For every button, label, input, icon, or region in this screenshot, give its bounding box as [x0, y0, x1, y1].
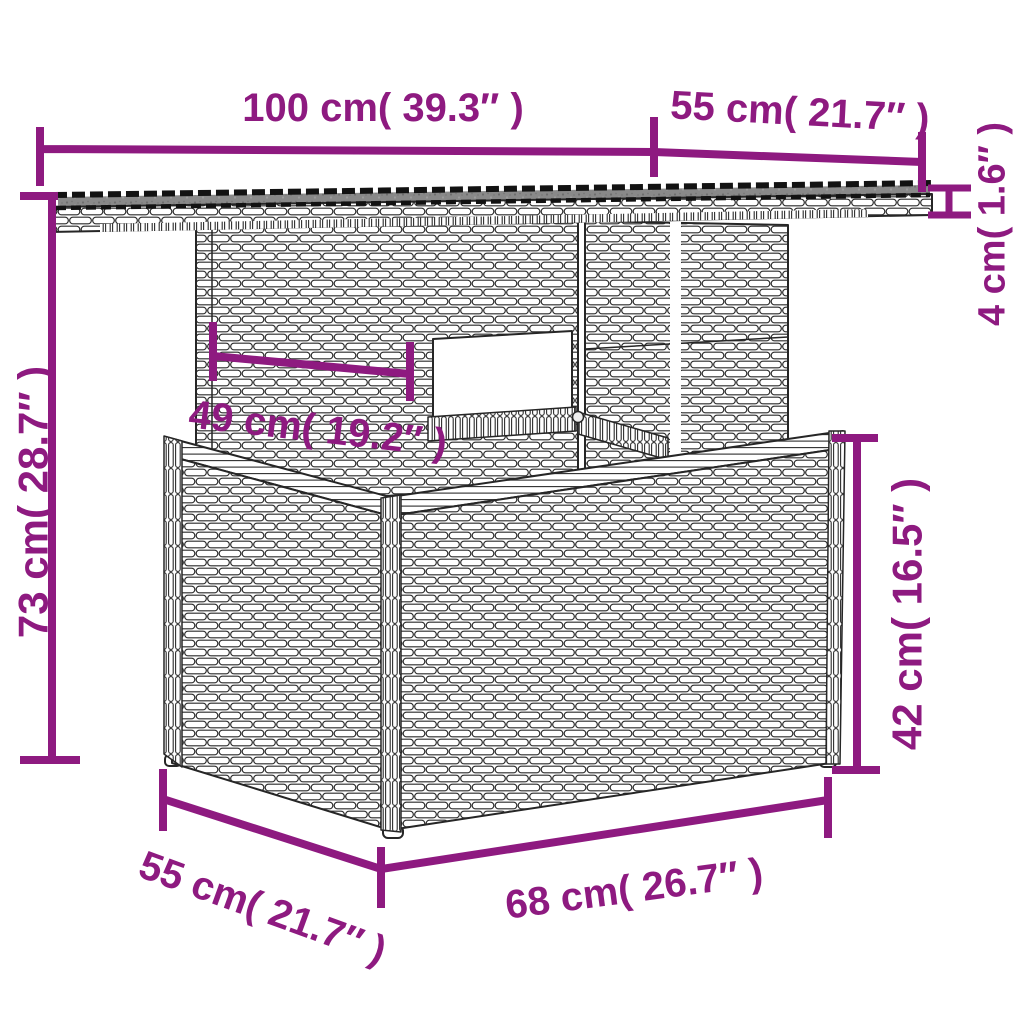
dim-tabletop-depth-line — [654, 132, 922, 192]
pedestal-panel-gap — [670, 222, 681, 458]
dim-tabletop-depth: 55 cm( 21.7″ ) — [654, 83, 931, 192]
base-corner-post-front — [381, 495, 401, 832]
base-wall-front-right — [390, 448, 843, 830]
dim-base-height-label: 42 cm( 16.5″ ) — [884, 478, 931, 750]
dim-overall-height: 73 cm( 28.7″ ) — [10, 196, 80, 760]
base-wall-front-left — [166, 455, 390, 830]
base-box — [164, 431, 845, 838]
dim-tabletop-thickness: 4 cm( 1.6″ ) — [928, 122, 1013, 326]
table-dimension-diagram: 100 cm( 39.3″ ) 55 cm( 21.7″ ) 4 cm( 1.6… — [0, 0, 1024, 1024]
dim-base-width-label: 68 cm( 26.7″ ) — [503, 850, 766, 927]
dim-tabletop-thickness-label: 4 cm( 1.6″ ) — [971, 122, 1013, 326]
diagram-canvas: 100 cm( 39.3″ ) 55 cm( 21.7″ ) 4 cm( 1.6… — [0, 0, 1024, 1024]
dim-tabletop-width-label: 100 cm( 39.3″ ) — [242, 86, 524, 130]
base-corner-post-right — [826, 431, 845, 764]
table-illustration — [50, 183, 934, 838]
dim-tabletop-width: 100 cm( 39.3″ ) — [40, 86, 654, 186]
base-corner-post-left — [164, 436, 182, 767]
height-adjust-knob — [573, 412, 584, 423]
dim-base-height: 42 cm( 16.5″ ) — [832, 438, 931, 770]
dim-overall-height-label: 73 cm( 28.7″ ) — [10, 366, 57, 638]
dim-tabletop-depth-label: 55 cm( 21.7″ ) — [669, 83, 930, 141]
dim-tabletop-thickness-bracket — [928, 188, 971, 215]
